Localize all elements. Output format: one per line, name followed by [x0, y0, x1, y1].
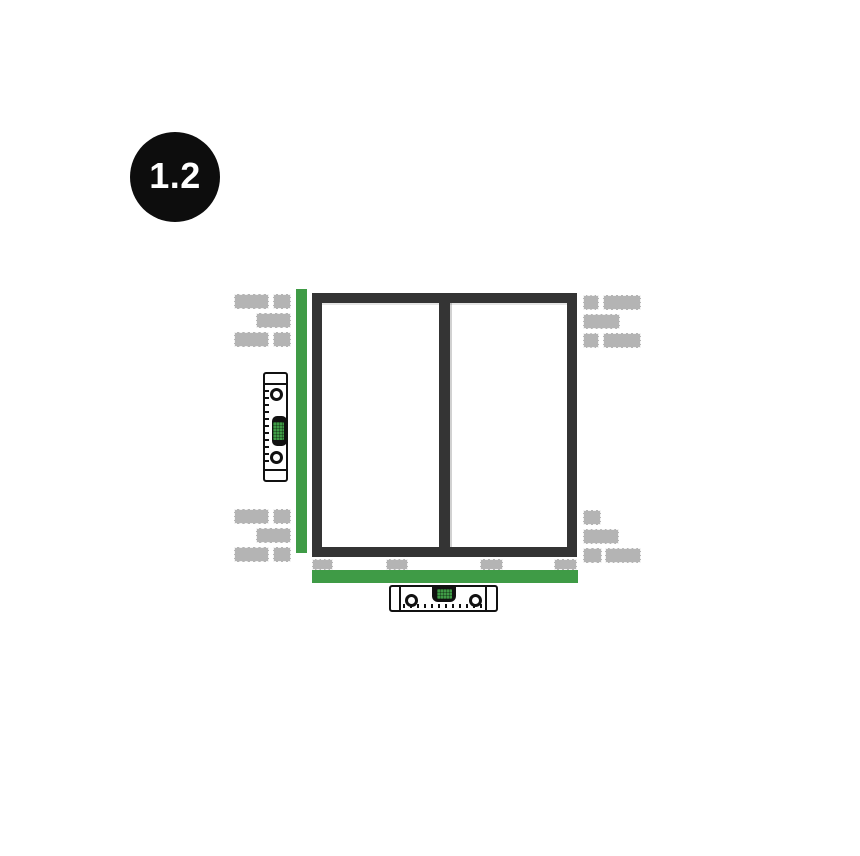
brick-icon [273, 509, 291, 524]
level-bubble-vial [437, 589, 452, 599]
brick-icon [603, 333, 641, 348]
brick-icon [273, 332, 291, 347]
brick-icon [605, 548, 641, 563]
packer-block-icon [312, 559, 333, 570]
green-packer-bottom-icon [312, 570, 578, 583]
brick-icon [256, 528, 291, 543]
level-end-cap [399, 587, 401, 610]
level-screw-hole [405, 594, 418, 607]
brick-icon [273, 547, 291, 562]
level-screw-hole [469, 594, 482, 607]
packer-block-icon [480, 559, 503, 570]
spirit-level-horizontal-icon [389, 585, 498, 612]
brick-icon [583, 333, 599, 348]
window-frame-icon [312, 293, 577, 557]
brick-icon [583, 510, 601, 525]
level-ruler-ticks [265, 390, 269, 464]
window-mullion [439, 303, 450, 547]
brick-icon [583, 314, 620, 329]
installation-diagram-step-1-2: 1.2 [0, 0, 860, 856]
level-end-cap [485, 587, 487, 610]
window-pane-right [450, 303, 567, 547]
level-end-cap [265, 469, 286, 471]
level-bubble-vial [273, 422, 284, 440]
level-screw-hole [270, 451, 283, 464]
brick-icon [583, 295, 599, 310]
window-pane-left [322, 303, 439, 547]
step-badge: 1.2 [130, 132, 220, 222]
brick-icon [234, 332, 269, 347]
step-number: 1.2 [149, 155, 201, 197]
brick-icon [583, 529, 619, 544]
brick-icon [234, 509, 269, 524]
brick-icon [234, 294, 269, 309]
level-end-cap [265, 383, 286, 385]
brick-icon [603, 295, 641, 310]
packer-block-icon [554, 559, 577, 570]
brick-icon [583, 548, 602, 563]
green-packer-left-icon [296, 289, 307, 553]
brick-icon [234, 547, 269, 562]
spirit-level-vertical-icon [263, 372, 288, 482]
packer-block-icon [386, 559, 408, 570]
brick-icon [273, 294, 291, 309]
brick-icon [256, 313, 291, 328]
level-screw-hole [270, 388, 283, 401]
